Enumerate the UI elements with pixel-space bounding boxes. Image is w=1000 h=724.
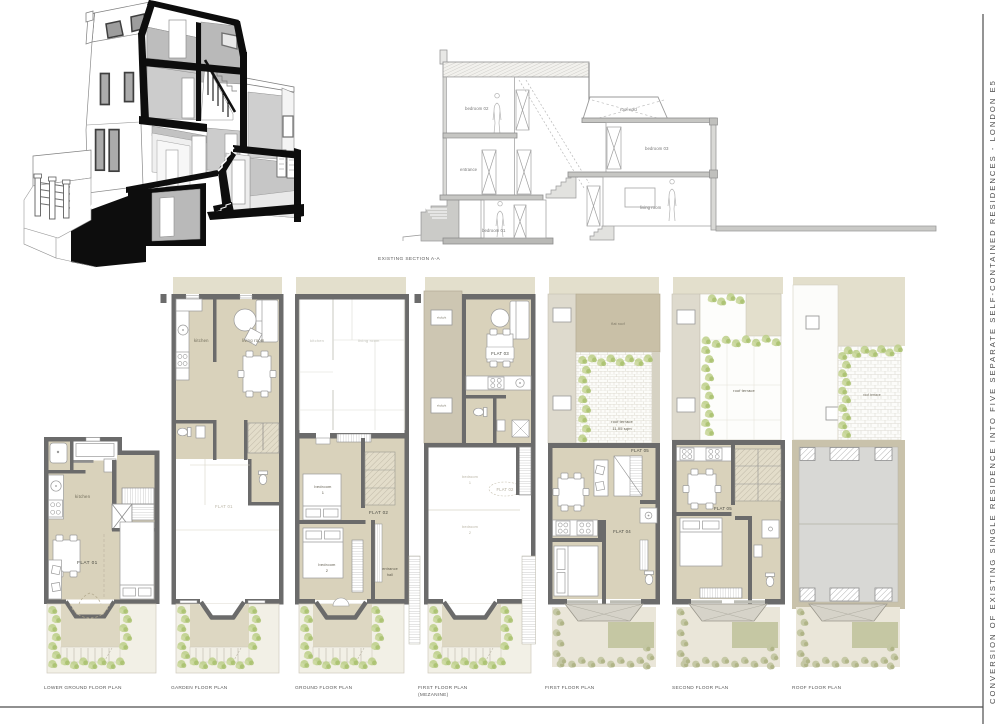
svg-text:CONVERSION OF EXISTING SINGLE: CONVERSION OF EXISTING SINGLE RESIDENCE … xyxy=(988,79,997,704)
svg-text:FLAT 04: FLAT 04 xyxy=(613,529,631,534)
svg-text:FLAT 02: FLAT 02 xyxy=(369,510,388,515)
svg-text:11.05 sqm: 11.05 sqm xyxy=(612,426,632,431)
svg-text:EXISTING SECTION A-A: EXISTING SECTION A-A xyxy=(378,256,441,262)
svg-text:roof terrace: roof terrace xyxy=(733,388,755,393)
svg-text:living room: living room xyxy=(358,338,380,343)
svg-text:flat roof: flat roof xyxy=(611,322,625,326)
svg-text:entrance: entrance xyxy=(460,167,478,172)
svg-text:bedroom: bedroom xyxy=(318,562,336,567)
svg-text:1: 1 xyxy=(469,481,471,485)
svg-text:ROOF FLOOR PLAN: ROOF FLOOR PLAN xyxy=(792,685,842,691)
svg-text:LOWER GROUND FLOOR PLAN: LOWER GROUND FLOOR PLAN xyxy=(44,685,122,691)
svg-text:skylight: skylight xyxy=(437,316,447,320)
svg-text:roof terrace: roof terrace xyxy=(863,393,881,397)
svg-text:living room: living room xyxy=(242,338,265,343)
svg-text:FLAT 03: FLAT 03 xyxy=(491,351,509,356)
svg-text:bedroom 01: bedroom 01 xyxy=(482,228,506,233)
svg-text:living room: living room xyxy=(640,205,662,210)
svg-text:FLAT 05: FLAT 05 xyxy=(714,506,732,511)
svg-text:FLAT 01: FLAT 01 xyxy=(215,504,233,509)
svg-text:GARDEN FLOOR PLAN: GARDEN FLOOR PLAN xyxy=(171,685,228,691)
svg-text:(MEZANINE): (MEZANINE) xyxy=(418,692,449,698)
svg-text:bedroom: bedroom xyxy=(462,525,478,529)
svg-text:FLAT 02: FLAT 02 xyxy=(496,487,514,492)
svg-text:kitchen: kitchen xyxy=(75,494,91,499)
svg-text:GROUND FLOOR PLAN: GROUND FLOOR PLAN xyxy=(295,685,353,691)
svg-text:kitchen: kitchen xyxy=(194,338,209,343)
svg-text:skylight: skylight xyxy=(437,404,447,408)
svg-text:FLAT 01: FLAT 01 xyxy=(77,560,98,566)
svg-text:SECOND FLOOR PLAN: SECOND FLOOR PLAN xyxy=(672,685,729,691)
svg-text:bedroom 03: bedroom 03 xyxy=(645,146,669,151)
svg-text:hall: hall xyxy=(387,573,393,577)
svg-text:bedroom 02: bedroom 02 xyxy=(465,106,489,111)
svg-text:FIRST FLOOR PLAN: FIRST FLOOR PLAN xyxy=(418,685,468,691)
svg-text:entrance: entrance xyxy=(382,567,398,571)
svg-text:FLAT 05: FLAT 05 xyxy=(631,448,649,453)
svg-text:2: 2 xyxy=(469,531,471,535)
svg-text:roof terrace: roof terrace xyxy=(611,419,633,424)
svg-text:bedroom: bedroom xyxy=(314,484,332,489)
svg-text:roof void: roof void xyxy=(620,107,637,112)
svg-text:kitchen: kitchen xyxy=(310,338,324,343)
svg-text:FIRST FLOOR PLAN: FIRST FLOOR PLAN xyxy=(545,685,595,691)
svg-text:bedroom: bedroom xyxy=(462,475,478,479)
